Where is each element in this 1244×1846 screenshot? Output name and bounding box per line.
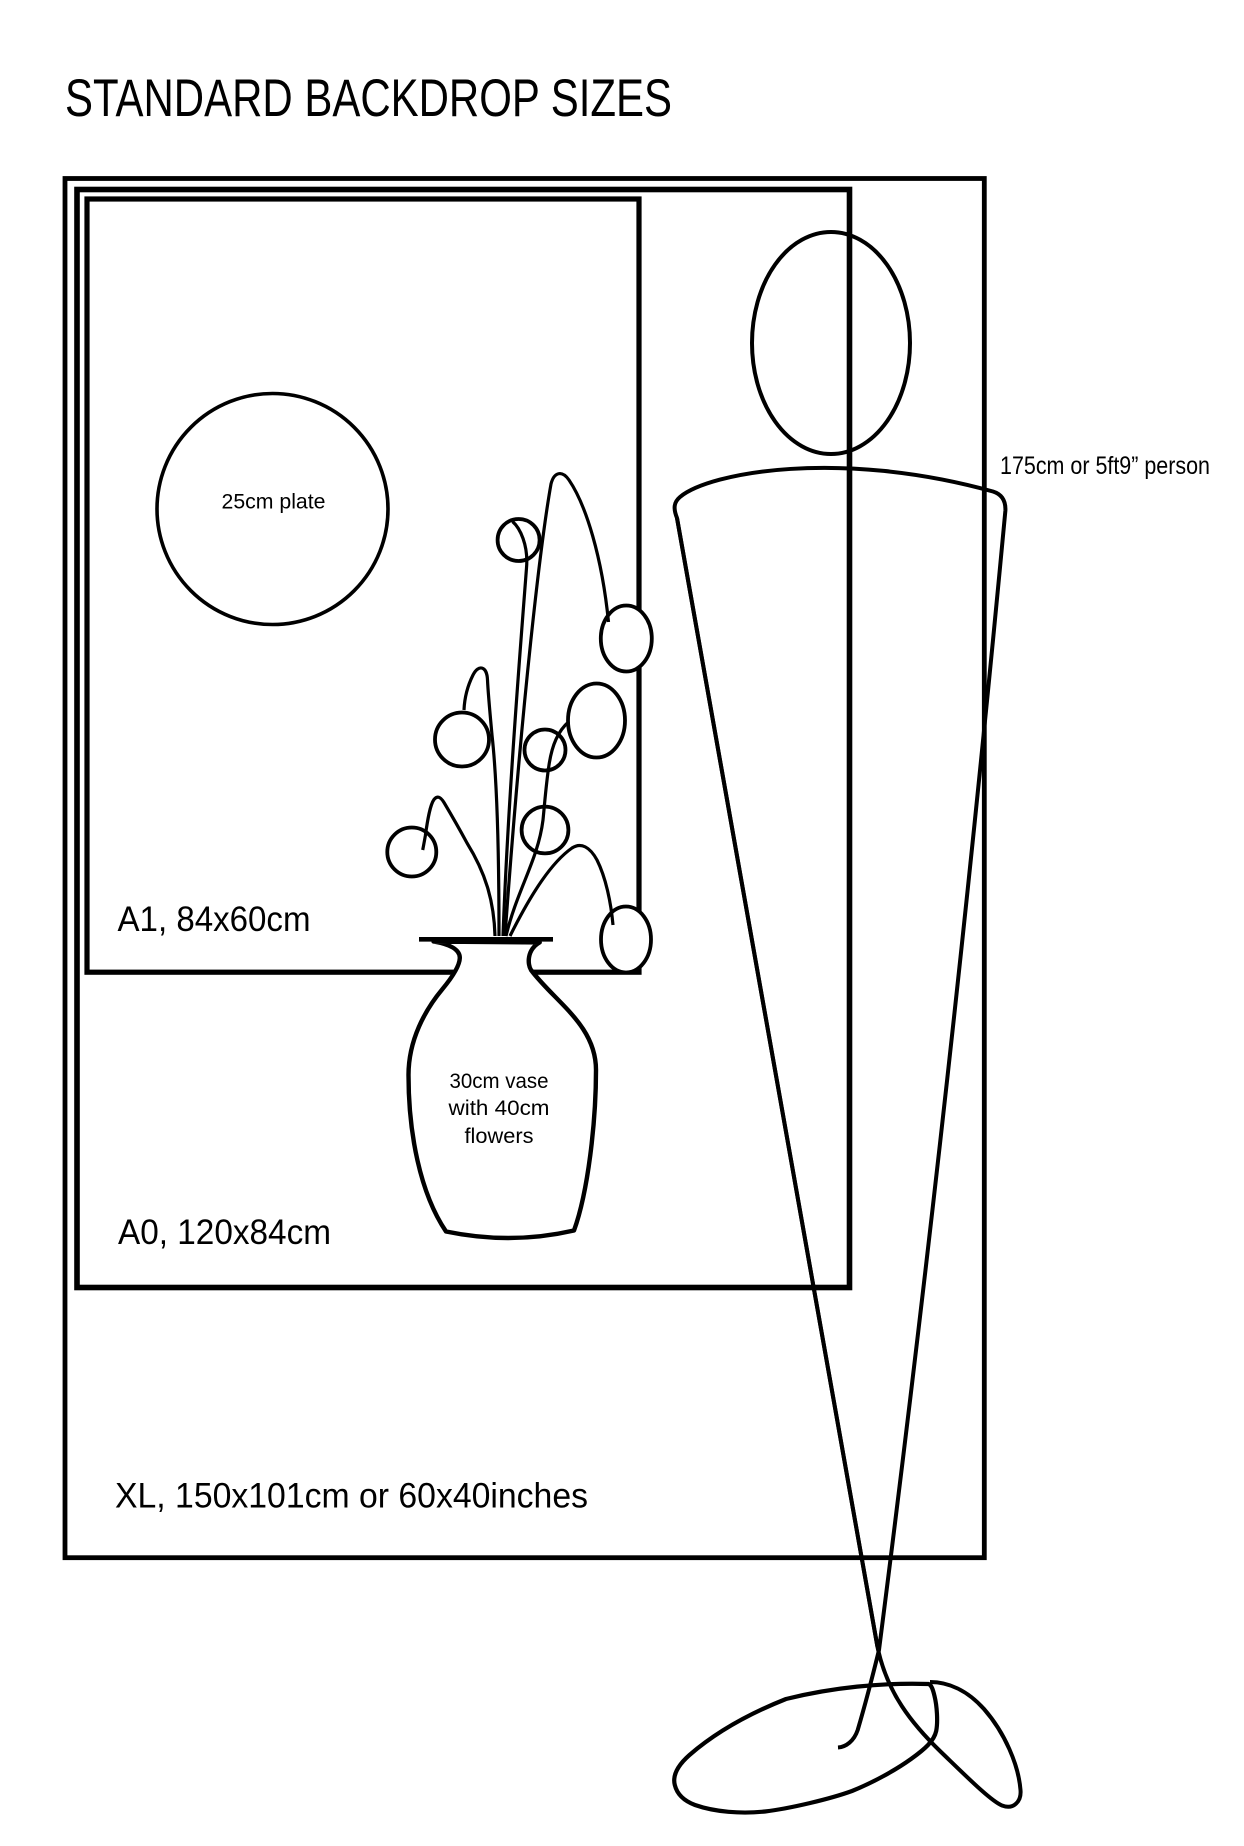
- svg-text:A0, 120x84cm: A0, 120x84cm: [118, 1213, 331, 1252]
- svg-text:flowers: flowers: [465, 1125, 534, 1148]
- svg-text:XL, 150x101cm or 60x40inches: XL, 150x101cm or 60x40inches: [115, 1477, 588, 1516]
- svg-text:175cm or 5ft9” person: 175cm or 5ft9” person: [1000, 452, 1210, 480]
- svg-text:with 40cm: with 40cm: [447, 1097, 549, 1120]
- svg-text:STANDARD BACKDROP SIZES: STANDARD BACKDROP SIZES: [65, 69, 672, 128]
- svg-text:25cm plate: 25cm plate: [222, 491, 326, 514]
- svg-text:30cm vase: 30cm vase: [450, 1070, 549, 1093]
- svg-text:A1, 84x60cm: A1, 84x60cm: [118, 900, 311, 939]
